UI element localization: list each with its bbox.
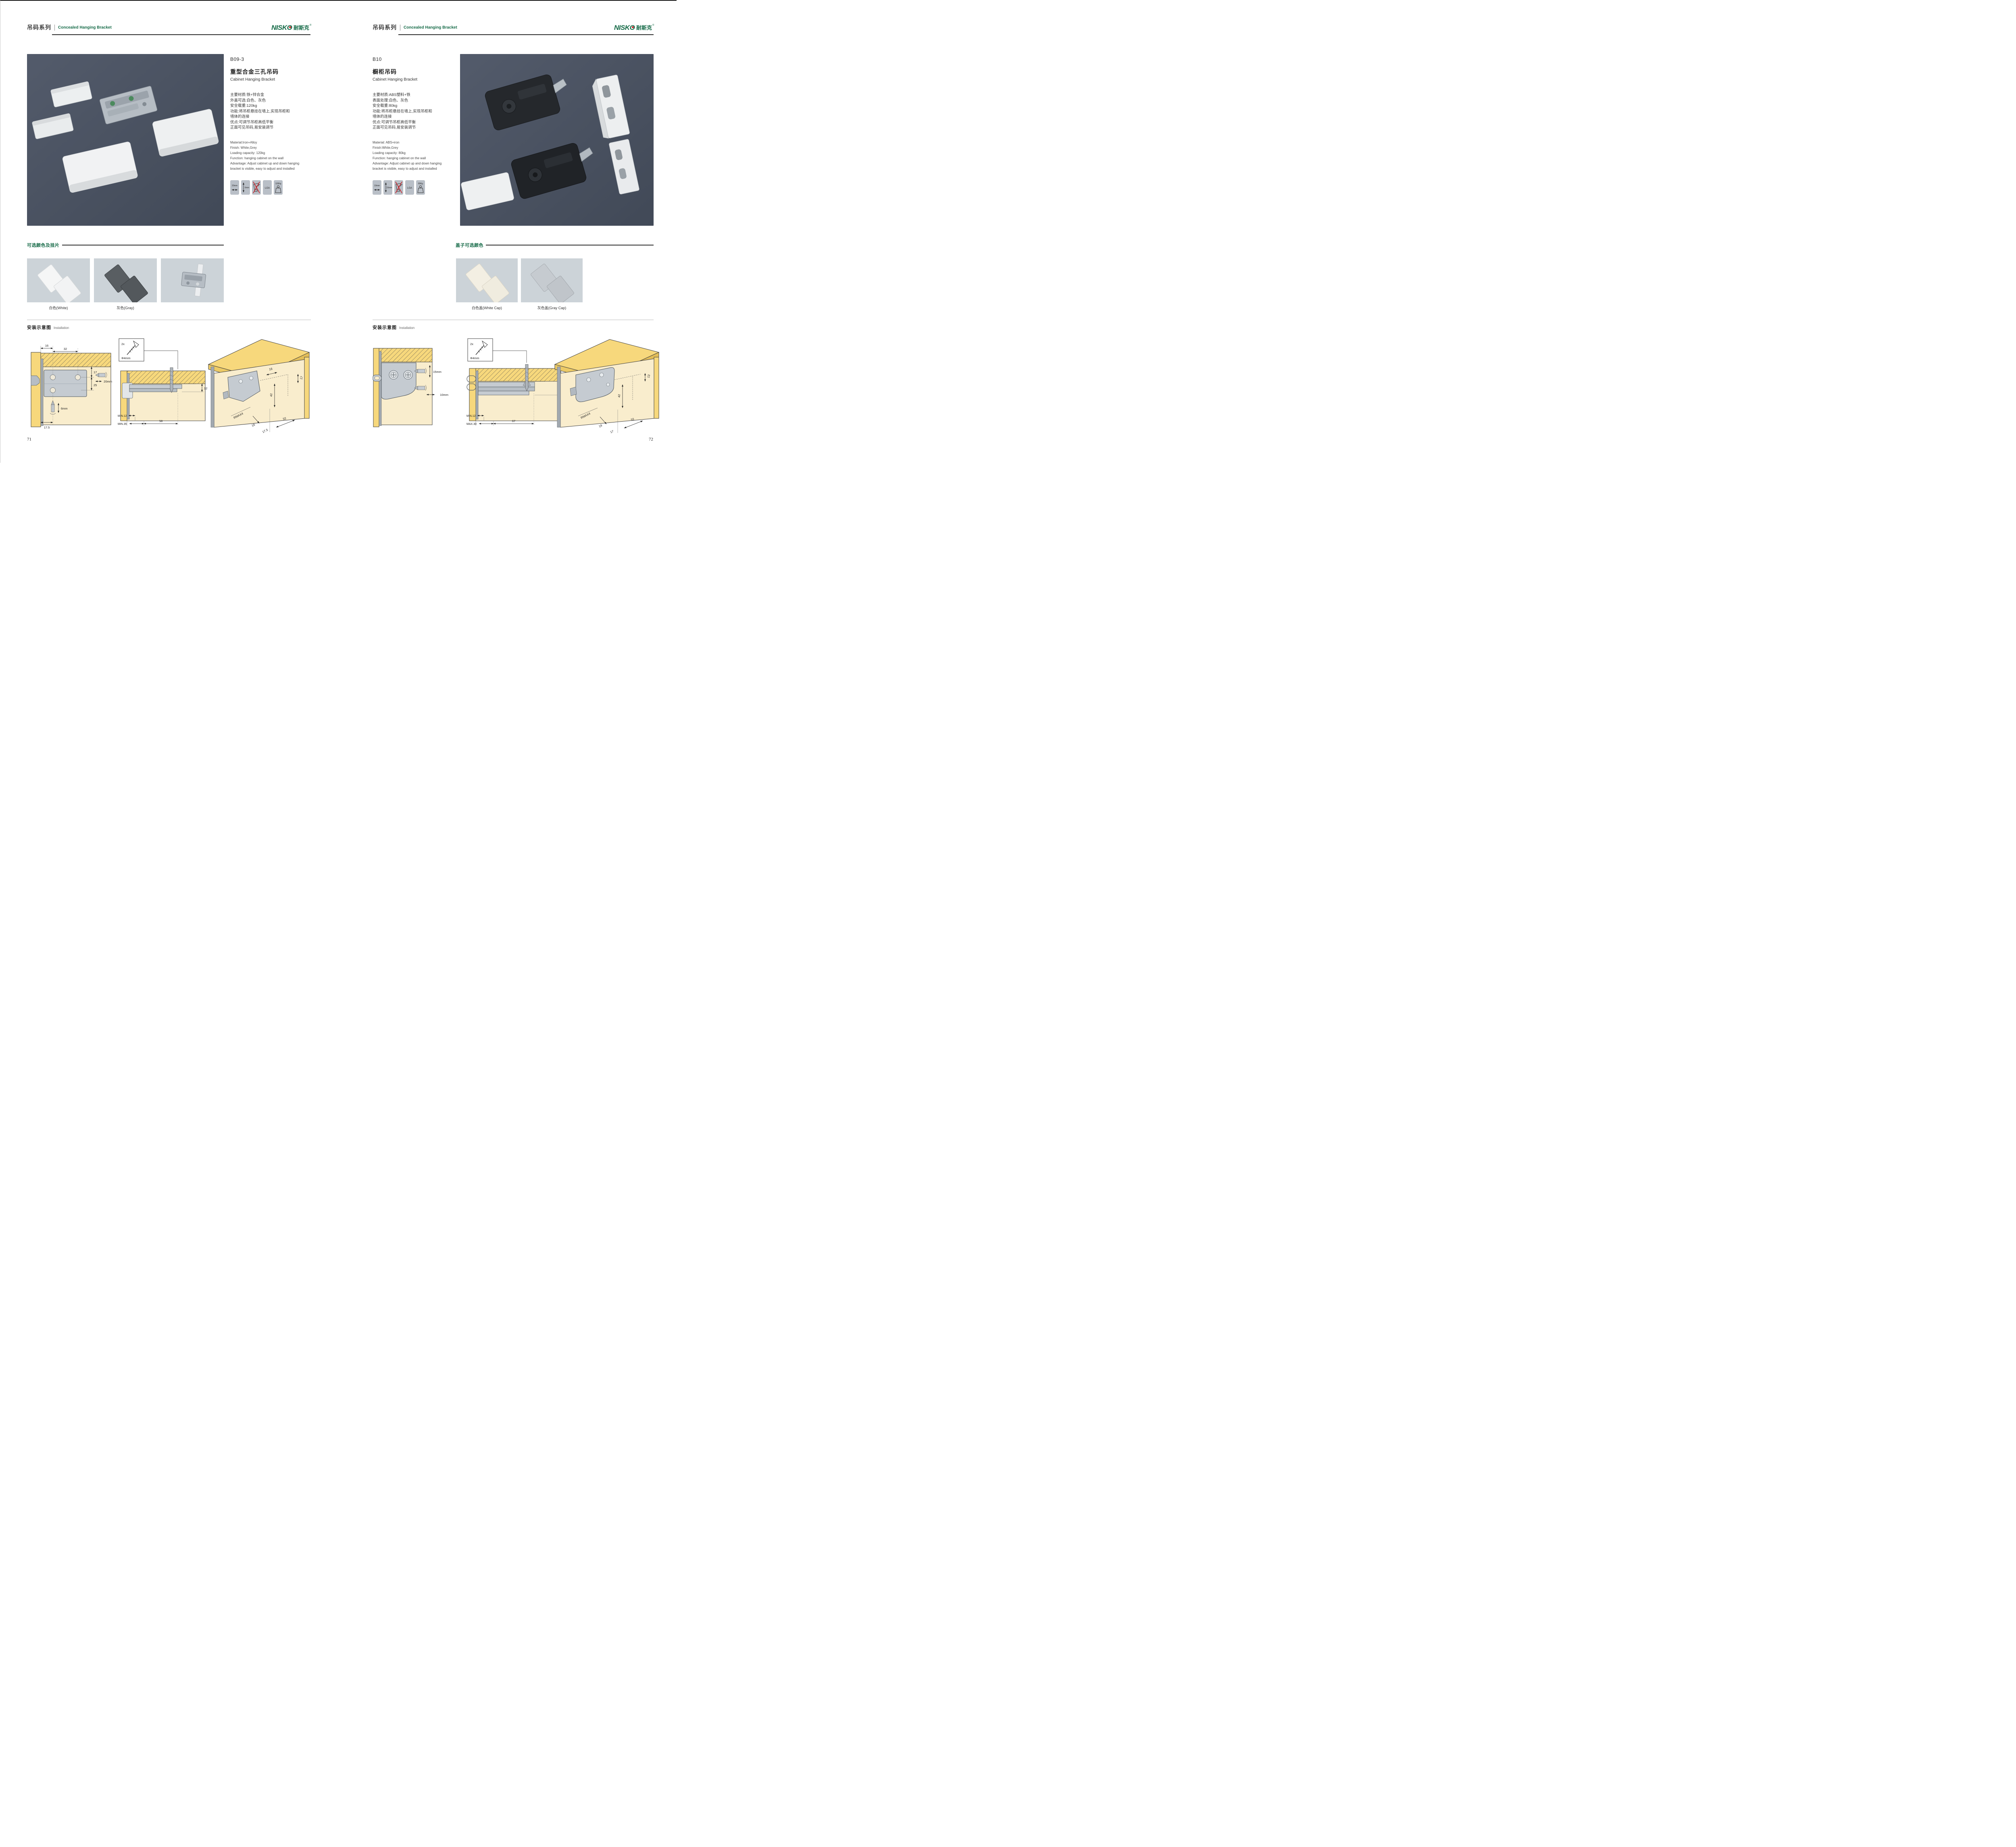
svg-text:15mm: 15mm xyxy=(433,370,442,374)
diagram-cabinet-perspective: 16 17 42 RMAX4 16 17.5 32 xyxy=(205,336,312,434)
swatch-caption: 白色盖(White Cap) xyxy=(472,305,502,310)
lga-cert-badge: LGA xyxy=(405,180,414,195)
width-arrow-icon: 10mm xyxy=(373,180,381,195)
svg-text:17.5: 17.5 xyxy=(44,426,50,429)
page-header: 吊码系列 Concealed Hanging Bracket xyxy=(373,23,457,31)
series-title-cn: 吊码系列 xyxy=(27,23,51,31)
product-info: B09-3 重型合金三孔吊码 Cabinet Hanging Bracket 主… xyxy=(230,54,316,195)
header-divider xyxy=(400,25,400,31)
swatch-white: 白色(White) xyxy=(27,258,90,310)
feature-badges: 20mm 6mm xyxy=(230,180,316,195)
product-info: B10 橱柜吊码 Cabinet Hanging Bracket 主要材质:AB… xyxy=(373,54,458,195)
svg-text:10mm: 10mm xyxy=(440,393,448,397)
brand-logo-text-en: NISKO xyxy=(271,24,292,31)
installation-title-en: Installation xyxy=(54,326,69,330)
svg-text:MAX.30: MAX.30 xyxy=(467,423,477,426)
swatch-hanging-plate xyxy=(161,258,224,310)
header-divider xyxy=(54,25,55,31)
svg-text:20mm: 20mm xyxy=(232,185,237,187)
colors-section-header: 盖子可选颜色 xyxy=(456,242,654,248)
no-power-drill-icon xyxy=(394,180,403,195)
installation-header: 安装示意图 Installation xyxy=(373,324,414,331)
svg-text:120Kg: 120Kg xyxy=(275,183,281,185)
no-power-drill-icon xyxy=(252,180,261,195)
installation-diagrams: 16 32 17 25 20mm 6mm 17.5 xyxy=(27,336,320,434)
svg-text:42: 42 xyxy=(269,393,273,397)
specs-en: Material: ABS+ironFinish:White,GreyLoadi… xyxy=(373,140,458,171)
svg-text:25: 25 xyxy=(94,383,97,387)
svg-text:10mm: 10mm xyxy=(374,185,380,187)
load-weight-icon: 120Kg xyxy=(274,180,283,195)
logo-red-dot-icon xyxy=(289,26,291,28)
svg-text:2x: 2x xyxy=(470,342,473,346)
section-title-line xyxy=(486,245,654,245)
color-swatches: 白色(White) 灰色(Gray) xyxy=(27,258,224,310)
specs-en: Material:Iron+AlloyFinish: White,GreyLoa… xyxy=(230,140,316,171)
specs-cn: 主要材质:ABS塑料+铁表面处理:白色、灰色安全载重:80kg功能:将吊柜悬挂在… xyxy=(373,92,458,131)
colors-section-title: 盖子可选颜色 xyxy=(456,242,483,248)
series-title-en: Concealed Hanging Bracket xyxy=(404,25,457,30)
registered-mark: ® xyxy=(310,24,312,27)
product-model: B10 xyxy=(373,54,458,62)
swatch-white-cap: 白色盖(White Cap) xyxy=(456,258,518,310)
svg-text:LGA: LGA xyxy=(265,187,270,189)
width-arrow-icon: 20mm xyxy=(230,180,239,195)
svg-text:16: 16 xyxy=(45,344,48,347)
registered-mark: ® xyxy=(652,24,654,27)
swatch-caption: 灰色盖(Gray Cap) xyxy=(537,305,566,310)
series-title-en: Concealed Hanging Bracket xyxy=(58,25,112,30)
page-72: 吊码系列 Concealed Hanging Bracket NISKO 耐斯克… xyxy=(338,1,677,463)
svg-text:Φ4mm: Φ4mm xyxy=(121,356,131,360)
page-number: 71 xyxy=(27,437,31,442)
product-name-cn: 橱柜吊码 xyxy=(373,68,458,76)
product-photo-b09-3 xyxy=(27,54,224,226)
section-divider xyxy=(373,320,654,320)
svg-text:17.5: 17.5 xyxy=(262,428,269,434)
svg-text:MIN.12: MIN.12 xyxy=(118,415,127,418)
installation-header: 安装示意图 Installation xyxy=(27,324,69,331)
svg-text:20mm: 20mm xyxy=(104,380,112,383)
svg-text:15mm: 15mm xyxy=(387,187,392,189)
diagram-front-section: 16 32 17 25 20mm 6mm 17.5 xyxy=(30,336,113,431)
svg-text:67: 67 xyxy=(512,419,515,423)
svg-text:2x: 2x xyxy=(121,342,125,346)
svg-text:MIN.12: MIN.12 xyxy=(467,415,476,418)
svg-text:LGA: LGA xyxy=(407,187,412,189)
svg-text:Φ4mm: Φ4mm xyxy=(470,356,479,360)
header-rule xyxy=(398,34,654,35)
brand-logo: NISKO 耐斯克 ® xyxy=(614,23,655,34)
logo-red-dot-icon xyxy=(632,26,634,28)
catalog-spread: 吊码系列 Concealed Hanging Bracket NISKO 耐斯克… xyxy=(0,0,677,463)
lga-cert-badge: LGA xyxy=(263,180,272,195)
installation-title-cn: 安装示意图 xyxy=(27,324,51,331)
product-photo-b10 xyxy=(460,54,654,226)
product-name-en: Cabinet Hanging Bracket xyxy=(373,77,458,82)
depth-arrow-icon: 6mm xyxy=(241,180,250,195)
svg-text:19: 19 xyxy=(598,424,603,428)
header-rule xyxy=(52,34,310,35)
series-title-cn: 吊码系列 xyxy=(373,23,397,31)
load-weight-icon: 80Kg xyxy=(416,180,425,195)
svg-text:17: 17 xyxy=(610,429,614,434)
brand-logo-text-cn: 耐斯克 xyxy=(294,25,309,31)
section-title-line xyxy=(62,245,224,245)
installation-title-cn: 安装示意图 xyxy=(373,324,397,331)
svg-text:80Kg: 80Kg xyxy=(418,183,423,185)
swatch-caption: 白色(White) xyxy=(49,305,68,310)
page-number: 72 xyxy=(649,437,653,442)
svg-text:58: 58 xyxy=(159,419,162,423)
page-71: 吊码系列 Concealed Hanging Bracket NISKO 耐斯克… xyxy=(0,1,338,463)
swatch-caption: 灰色(Gray) xyxy=(117,305,134,310)
brand-logo-text-cn: 耐斯克 xyxy=(636,25,652,31)
svg-text:6mm: 6mm xyxy=(61,407,68,410)
page-header: 吊码系列 Concealed Hanging Bracket xyxy=(27,23,112,31)
depth-arrow-icon: 15mm xyxy=(383,180,392,195)
diagram-front-view: 15mm 10mm xyxy=(373,336,449,431)
brand-logo: NISKO 耐斯克 ® xyxy=(271,23,312,34)
colors-section-title: 可选颜色及挂片 xyxy=(27,242,60,248)
color-swatches: 白色盖(White Cap) 灰色盖(Gray Cap) xyxy=(456,258,583,310)
svg-text:6mm: 6mm xyxy=(245,187,249,189)
colors-section-header: 可选颜色及挂片 xyxy=(27,242,224,248)
installation-diagrams: 15mm 10mm 2x Φ4mm xyxy=(373,336,671,434)
brand-logo-text-en: NISKO xyxy=(614,24,635,31)
svg-text:MIN.35: MIN.35 xyxy=(118,423,127,426)
svg-text:42: 42 xyxy=(617,394,621,397)
section-divider xyxy=(27,320,311,320)
svg-text:32: 32 xyxy=(64,347,67,351)
product-name-cn: 重型合金三孔吊码 xyxy=(230,68,316,76)
specs-cn: 主要材质:铁+锌合金外盖可选:白色、灰色安全载重:120kg功能:将吊柜悬挂在墙… xyxy=(230,92,316,131)
diagram-side-section: 2x Φ4mm 12 MIN.12 xyxy=(117,336,211,431)
svg-text:17: 17 xyxy=(94,370,97,374)
diagram-cabinet-perspective: 13 42 RMAX4 19 17 32 xyxy=(550,336,663,434)
installation-title-en: Installation xyxy=(399,326,414,330)
product-name-en: Cabinet Hanging Bracket xyxy=(230,77,316,82)
swatch-gray-cap: 灰色盖(Gray Cap) xyxy=(521,258,583,310)
product-model: B09-3 xyxy=(230,54,316,62)
swatch-gray: 灰色(Gray) xyxy=(94,258,157,310)
feature-badges: 10mm 15mm xyxy=(373,180,458,195)
